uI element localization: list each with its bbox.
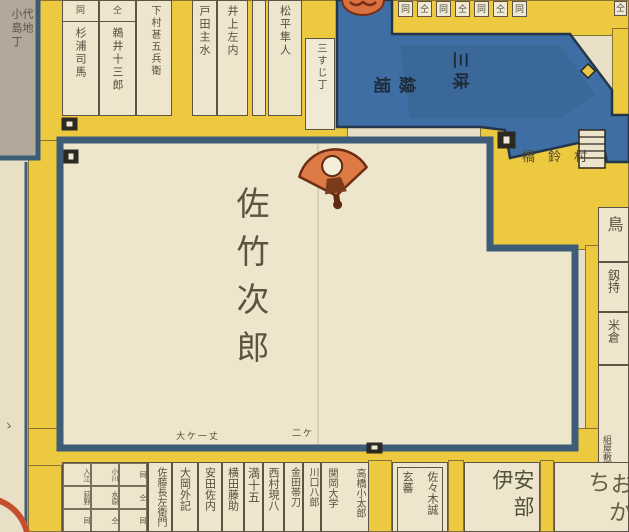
bottom-lot-name: 金田帯刀 [289, 467, 299, 531]
sasaki-left-name: 玄蕃 [402, 471, 413, 493]
grid-cell: 仝 [91, 509, 119, 532]
bottom-lot-name: 満十五 [248, 467, 260, 531]
right-lot-3: 米倉 [598, 312, 629, 365]
right-lot-2-name: 釼持 [608, 269, 620, 311]
bottom-lot-yokota: 横田藤助 [222, 462, 244, 532]
bottom-lot-name: 安田佐内 [205, 467, 216, 531]
right-lot-2: 釼持 [598, 262, 629, 312]
guardpost-markers [62, 118, 515, 453]
toprow-box-2: 仝 [417, 1, 432, 17]
bottom-lot-ooka: 大岡外記 [172, 462, 198, 532]
lot-top-1: 同 杉浦司馬 [62, 0, 99, 116]
bottom-lot-yasuda: 安田佐内 [198, 462, 222, 532]
toprow-box-7: 同 [512, 1, 527, 17]
toprow-box-8: 仝 [614, 1, 627, 16]
grid-cell: 同 [119, 509, 147, 532]
corner-plot-name: おかち [581, 469, 629, 532]
bottom-lot-name: 西村現八 [268, 467, 279, 531]
right-lot-3-name: 米倉 [608, 319, 620, 364]
left-margin-mark: ゝ [1, 420, 11, 430]
alley-bottom-1 [368, 460, 392, 532]
estate-name: 佐竹次郎 [234, 186, 267, 378]
water-label-part1: 三味 [450, 51, 475, 95]
road-note-2: 二ケ [292, 426, 314, 439]
water-corner-diamond [581, 64, 595, 78]
water-texture [400, 45, 595, 118]
pair-box-right-name: 高橋小太郎 [354, 468, 364, 518]
lot-top-3: 下村甚五兵衛 [136, 0, 172, 116]
toprow-box-5: 同 [474, 1, 489, 17]
grid-cell: 仝 [119, 486, 147, 509]
bottom-lot-mitsu: 満十五 [244, 462, 263, 532]
bottom-lot-kawaguchi: 川口八郎 [303, 462, 321, 532]
lot-top-1-header: 同 [63, 1, 98, 22]
bottom-lot-name: 横田藤助 [228, 467, 239, 531]
abe-name: 安部伊 [491, 469, 533, 531]
bottom-lot-name: 佐藤長左衛門 [155, 467, 165, 531]
gray-block-col2: 代地 [22, 8, 33, 158]
lot-top-1-name: 杉浦司馬 [75, 27, 86, 79]
grid-cell: 同 [119, 463, 147, 486]
grid-cell: 同 [63, 509, 91, 532]
alley-bottom-2 [448, 460, 464, 532]
grid-cell: 小川 [91, 463, 119, 486]
lot-top-5: 井上左内 [217, 0, 248, 116]
sasaki-right-name: 佐々木誠 [427, 471, 438, 515]
lot-top-narrow [252, 0, 266, 116]
bottom-lot-corner: おかち [554, 462, 629, 532]
lot-top-4: 戸田主水 [192, 0, 217, 116]
bottom-lot-nishimura: 西村現八 [263, 462, 284, 532]
partial-crest-ring-bottom-left [0, 498, 28, 532]
bridge-label: 橋鈴村 [522, 146, 600, 165]
bottom-lot-kaneda: 金田帯刀 [284, 462, 303, 532]
lot-top-3-name: 下村甚五兵衛 [149, 5, 159, 115]
edo-map-canvas: 同 杉浦司馬 仝 鵜井十三郎 下村甚五兵衛 戸田主水 井上左内 松平隼人 三すじ… [0, 0, 629, 532]
bottom-lot-pair-box: 高橋小太郎 関岡大学 [321, 462, 369, 532]
bottom-lot-sasaki-box: 佐々木誠 玄蕃 [392, 462, 448, 532]
grid-cell: 入江 [63, 463, 91, 486]
toprow-box-1: 同 [398, 1, 413, 17]
alley-bottom-3 [540, 460, 554, 532]
right-lot-1: 鳥 [598, 207, 629, 262]
right-lot-4-name: 組屋敷 [601, 435, 610, 462]
toprow-box-3: 同 [436, 1, 451, 17]
lot-top-2-header: 仝 [100, 1, 135, 22]
right-lot-1-name: 鳥 [606, 216, 622, 261]
grid-cell: 水原 [91, 486, 119, 509]
road-bottom-band [28, 428, 629, 466]
toprow-box-4: 仝 [455, 1, 470, 17]
pair-box-left-name: 関岡大学 [326, 468, 336, 508]
road-left-vertical [28, 140, 62, 532]
partial-crest-top [342, 0, 384, 15]
road-right-edge-strip [612, 28, 629, 123]
bottom-lot-name: 大岡外記 [180, 467, 191, 531]
lot-top-4-name: 戸田主水 [199, 5, 210, 115]
lot-top-2: 仝 鵜井十三郎 [99, 0, 136, 116]
road-note-1: 大ケ一丈 [176, 429, 220, 442]
right-lot-4: 組屋敷 [598, 365, 629, 465]
street-label: 三すじ丁 [315, 43, 325, 129]
gray-block-text: 小島丁 代地 [2, 8, 36, 158]
street-label-box: 三すじ丁 [305, 38, 335, 130]
toprow-box-6: 仝 [493, 1, 508, 17]
bottom-grid: 入江 小川 同 荻野 水原 仝 同 仝 同 [62, 462, 148, 532]
lot-top-5-name: 井上左内 [227, 5, 238, 115]
lot-top-6-name: 松平隼人 [280, 5, 291, 115]
satake-fan-crest [296, 145, 372, 214]
lot-top-6: 松平隼人 [268, 0, 302, 116]
grid-cell: 荻野 [63, 486, 91, 509]
lot-top-2-name: 鵜井十三郎 [112, 27, 123, 92]
water-label-part2: 線堀 [371, 67, 421, 107]
bottom-lot-sato: 佐藤長左衛門 [148, 462, 172, 532]
bottom-lot-name: 川口八郎 [307, 467, 317, 531]
bottom-lot-abe: 安部伊 [464, 462, 540, 532]
